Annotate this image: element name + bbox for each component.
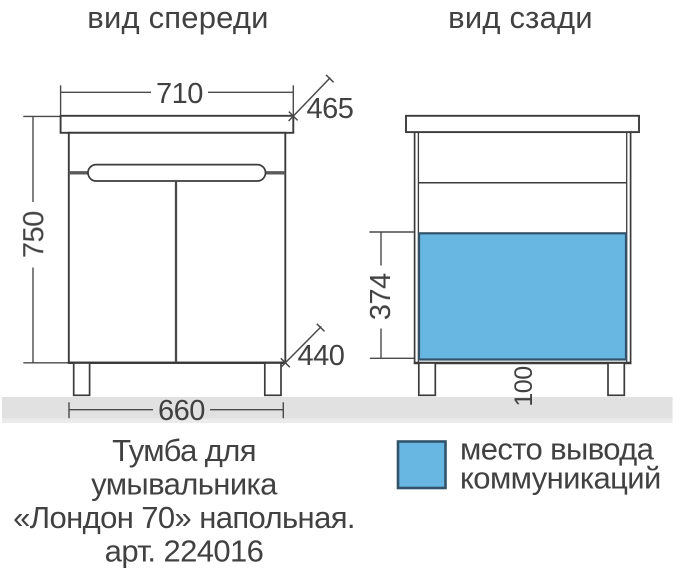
svg-text:«Лондон 70» напольная.: «Лондон 70» напольная.: [13, 500, 355, 535]
svg-text:750: 750: [18, 211, 50, 258]
svg-text:коммуникаций: коммуникаций: [460, 461, 661, 496]
svg-text:арт. 224016: арт. 224016: [105, 534, 264, 569]
svg-text:умывальника: умывальника: [91, 467, 278, 502]
svg-text:660: 660: [158, 395, 205, 427]
svg-text:440: 440: [298, 340, 345, 372]
svg-text:вид спереди: вид спереди: [87, 0, 268, 35]
svg-text:100: 100: [510, 366, 538, 406]
svg-text:710: 710: [156, 78, 203, 110]
svg-text:вид сзади: вид сзади: [448, 0, 593, 35]
svg-text:Тумба для: Тумба для: [112, 433, 256, 468]
svg-text:374: 374: [365, 273, 397, 320]
svg-text:465: 465: [307, 93, 354, 125]
